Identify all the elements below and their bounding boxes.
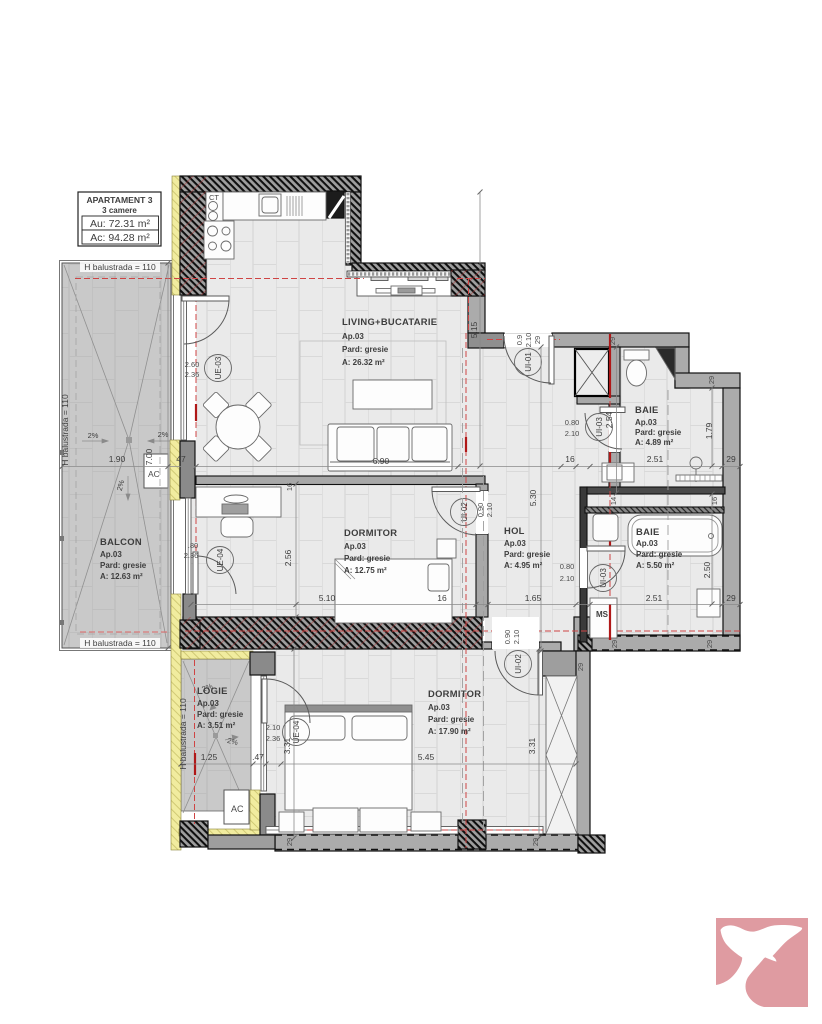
svg-text:A: 17.90 m²: A: 17.90 m² (428, 727, 471, 736)
svg-text:0.80: 0.80 (565, 418, 580, 427)
svg-text:2%: 2% (158, 430, 169, 439)
svg-text:2.10: 2.10 (485, 503, 494, 518)
svg-text:2.36: 2.36 (266, 734, 281, 743)
svg-text:16: 16 (437, 593, 447, 603)
svg-text:A: 3.51 m²: A: 3.51 m² (197, 721, 236, 730)
svg-text:2.10: 2.10 (560, 574, 575, 583)
svg-text:29: 29 (705, 640, 714, 648)
svg-text:29: 29 (608, 337, 617, 345)
svg-text:3 camere: 3 camere (102, 206, 137, 215)
svg-text:UI-01: UI-01 (524, 352, 533, 372)
svg-text:DORMITOR: DORMITOR (428, 688, 481, 699)
svg-text:Pard: gresie: Pard: gresie (636, 550, 683, 559)
svg-text:UE-03: UE-03 (214, 356, 223, 379)
svg-text:UI-03: UI-03 (595, 417, 604, 437)
svg-text:DORMITOR: DORMITOR (344, 527, 397, 538)
svg-text:UI-03: UI-03 (599, 568, 608, 588)
svg-text:0.90: 0.90 (503, 630, 512, 645)
svg-text:29: 29 (576, 663, 585, 671)
svg-text:29: 29 (707, 376, 716, 384)
svg-text:BAIE: BAIE (635, 404, 659, 415)
svg-text:Pard: gresie: Pard: gresie (635, 428, 682, 437)
svg-text:2.10: 2.10 (512, 630, 521, 645)
svg-text:Ap.03: Ap.03 (342, 332, 364, 341)
svg-text:APARTAMENT 3: APARTAMENT 3 (86, 195, 152, 205)
svg-text:29: 29 (533, 336, 542, 344)
svg-text:Pard: gresie: Pard: gresie (344, 554, 391, 563)
svg-text:2.10: 2.10 (266, 723, 281, 732)
svg-text:H balustrada = 110: H balustrada = 110 (84, 262, 156, 272)
svg-text:0.90: 0.90 (476, 503, 485, 518)
svg-text:0.9: 0.9 (515, 335, 524, 345)
svg-text:.80: .80 (188, 541, 198, 550)
svg-text:UI-02: UI-02 (514, 654, 523, 674)
svg-text:1.25: 1.25 (201, 752, 218, 762)
svg-text:2.54: 2.54 (604, 411, 614, 428)
svg-text:1.65: 1.65 (525, 593, 542, 603)
svg-text:29: 29 (531, 838, 540, 846)
svg-text:5.10: 5.10 (319, 593, 336, 603)
svg-text:BAIE: BAIE (636, 526, 660, 537)
svg-text:1.79: 1.79 (704, 422, 714, 439)
svg-text:HOL: HOL (504, 525, 525, 536)
svg-text:3.31: 3.31 (527, 737, 537, 754)
svg-text:5.45: 5.45 (418, 752, 435, 762)
svg-text:UI-02: UI-02 (460, 502, 469, 522)
svg-text:CT: CT (209, 193, 219, 202)
svg-text:Pard: gresie: Pard: gresie (504, 550, 551, 559)
svg-text:29: 29 (726, 593, 736, 603)
svg-text:Ac: 94.28 m²: Ac: 94.28 m² (90, 232, 150, 244)
svg-text:AC: AC (148, 469, 160, 479)
svg-text:H balustrada = 110: H balustrada = 110 (84, 638, 156, 648)
svg-text:A: 12.75 m²: A: 12.75 m² (344, 566, 387, 575)
svg-text:.47: .47 (252, 752, 264, 762)
svg-text:47: 47 (176, 454, 186, 464)
svg-text:2.36: 2.36 (185, 370, 200, 379)
svg-text:Ap.03: Ap.03 (636, 539, 658, 548)
svg-text:1.90: 1.90 (109, 454, 126, 464)
svg-text:2.60: 2.60 (185, 360, 200, 369)
svg-text:MS: MS (596, 610, 609, 619)
svg-text:A: 4.95 m²: A: 4.95 m² (504, 561, 543, 570)
svg-text:Ap.03: Ap.03 (100, 550, 122, 559)
svg-text:2%: 2% (88, 431, 99, 440)
svg-text:29: 29 (285, 838, 294, 846)
svg-text:A: 5.50 m²: A: 5.50 m² (636, 561, 675, 570)
svg-text:BALCON: BALCON (100, 536, 142, 547)
svg-text:A: 4.89 m²: A: 4.89 m² (635, 438, 674, 447)
svg-text:2.51: 2.51 (647, 454, 664, 464)
svg-text:Au: 72.31 m²: Au: 72.31 m² (90, 218, 151, 230)
svg-text:2.56: 2.56 (283, 549, 293, 566)
svg-text:Pard: gresie: Pard: gresie (428, 715, 475, 724)
svg-text:2.51: 2.51 (646, 593, 663, 603)
svg-text:Ap.03: Ap.03 (635, 418, 657, 427)
svg-text:6.90: 6.90 (373, 456, 390, 466)
svg-text:29: 29 (610, 640, 619, 648)
svg-text:16: 16 (565, 454, 575, 464)
svg-text:2.10: 2.10 (524, 333, 533, 348)
svg-text:Pard: gresie: Pard: gresie (197, 710, 244, 719)
svg-text:Ap.03: Ap.03 (504, 539, 526, 548)
svg-text:29: 29 (726, 454, 736, 464)
svg-text:16: 16 (285, 483, 294, 491)
svg-text:2.50: 2.50 (702, 561, 712, 578)
svg-text:5.15: 5.15 (469, 321, 479, 338)
svg-text:UE-04: UE-04 (216, 548, 225, 571)
svg-text:H balustrada = 110: H balustrada = 110 (178, 698, 188, 770)
svg-text:2.10: 2.10 (565, 429, 580, 438)
svg-text:Pard: gresie: Pard: gresie (342, 345, 389, 354)
svg-text:H balustrada = 110: H balustrada = 110 (60, 394, 70, 466)
svg-text:A: 12.63 m²: A: 12.63 m² (100, 572, 143, 581)
svg-text:0.80: 0.80 (560, 562, 575, 571)
svg-text:UE-04: UE-04 (292, 720, 301, 743)
svg-text:Ap.03: Ap.03 (428, 703, 450, 712)
svg-text:16: 16 (710, 497, 719, 505)
svg-text:A: 26.32 m²: A: 26.32 m² (342, 358, 385, 367)
svg-text:7.00: 7.00 (144, 448, 154, 465)
svg-text:AC: AC (231, 804, 244, 814)
svg-text:2.36: 2.36 (184, 551, 199, 560)
svg-text:5.30: 5.30 (528, 489, 538, 506)
svg-text:LIVING+BUCATARIE: LIVING+BUCATARIE (342, 316, 437, 327)
svg-text:3.31: 3.31 (282, 737, 292, 754)
svg-text:Ap.03: Ap.03 (344, 542, 366, 551)
svg-text:14: 14 (609, 497, 618, 505)
svg-text:LOGIE: LOGIE (197, 685, 228, 696)
svg-text:Ap.03: Ap.03 (197, 699, 219, 708)
svg-text:Pard: gresie: Pard: gresie (100, 561, 147, 570)
